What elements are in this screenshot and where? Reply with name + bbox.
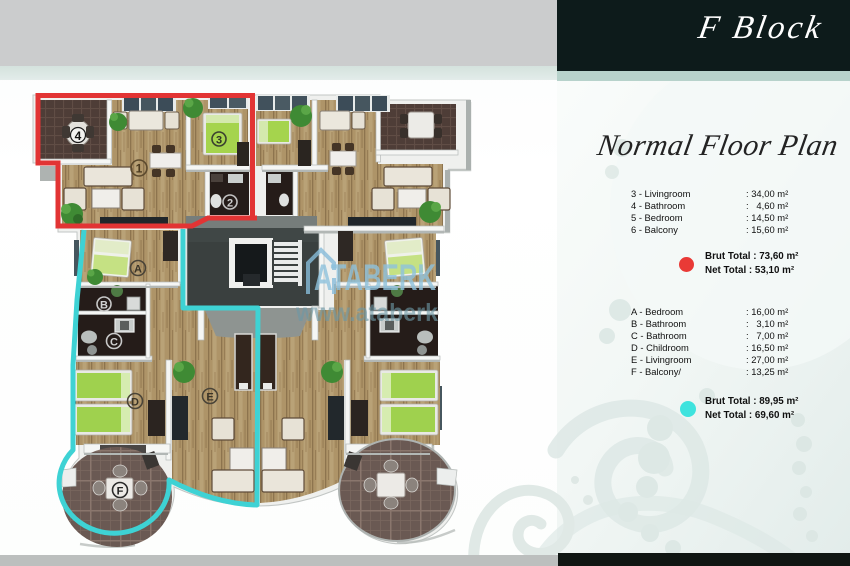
svg-text:www.ataberk: www.ataberk <box>295 299 438 327</box>
svg-text:ATABERK: ATABERK <box>314 257 436 298</box>
